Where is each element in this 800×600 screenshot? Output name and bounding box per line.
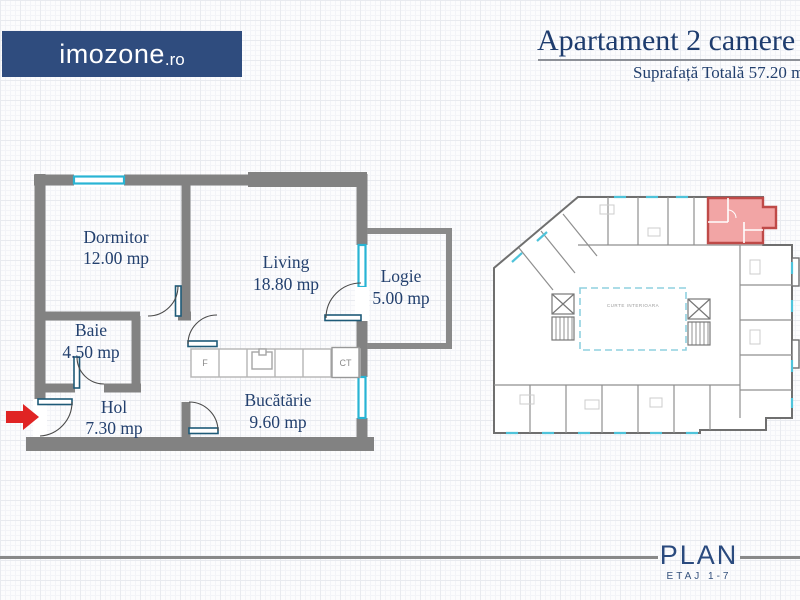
kitchen-door bbox=[189, 428, 218, 434]
logie-door bbox=[325, 315, 361, 321]
plan-title: PLAN bbox=[656, 542, 742, 569]
room-label-hol: Hol bbox=[101, 397, 127, 417]
plan-badge: PLAN ETAJ 1-7 bbox=[656, 542, 742, 582]
outer-walls bbox=[34, 174, 367, 444]
courtyard bbox=[580, 288, 686, 350]
highlighted-unit bbox=[708, 198, 776, 243]
apartment-floorplan: F CT Dormitor 12.00 mp Living 18.80 mp L… bbox=[0, 0, 480, 480]
room-label-living: Living bbox=[263, 252, 310, 272]
boiler-label: CT bbox=[340, 358, 352, 368]
page-title: Apartament 2 camere bbox=[537, 24, 800, 57]
room-area-baie: 4.50 mp bbox=[62, 342, 120, 362]
room-label-baie: Baie bbox=[75, 320, 107, 340]
building-floorplan: CURTE INTERIOARA bbox=[480, 180, 800, 440]
total-area-subtitle: Suprafață Totală 57.20 mp bbox=[633, 63, 800, 83]
title-underline bbox=[538, 59, 800, 61]
room-label-logie: Logie bbox=[381, 266, 422, 286]
room-area-hol: 7.30 mp bbox=[85, 418, 143, 438]
living-top-wall bbox=[248, 172, 367, 187]
windows bbox=[33, 172, 369, 437]
fridge-label: F bbox=[202, 358, 208, 368]
living-logie-window bbox=[359, 245, 366, 287]
room-label-dormitor: Dormitor bbox=[83, 227, 148, 247]
kitchen-counter bbox=[191, 348, 360, 378]
courtyard-label: CURTE INTERIOARA bbox=[607, 303, 659, 308]
living-door bbox=[188, 341, 217, 347]
plan-floors: ETAJ 1-7 bbox=[656, 571, 742, 582]
room-area-logie: 5.00 mp bbox=[372, 288, 430, 308]
room-area-bucatarie: 9.60 mp bbox=[249, 412, 307, 432]
kitchen-window bbox=[359, 377, 366, 418]
page: imozone.ro Apartament 2 camere Suprafață… bbox=[0, 0, 800, 600]
header: Apartament 2 camere bbox=[537, 24, 800, 57]
room-labels: Dormitor 12.00 mp Living 18.80 mp Logie … bbox=[62, 227, 430, 438]
footer-rule-right bbox=[740, 556, 800, 559]
entrance-door bbox=[38, 399, 72, 405]
room-area-dormitor: 12.00 mp bbox=[83, 248, 149, 268]
room-area-living: 18.80 mp bbox=[253, 274, 319, 294]
footer-rule-left bbox=[0, 556, 658, 559]
room-label-bucatarie: Bucătărie bbox=[244, 390, 311, 410]
dormitor-window bbox=[74, 177, 124, 184]
